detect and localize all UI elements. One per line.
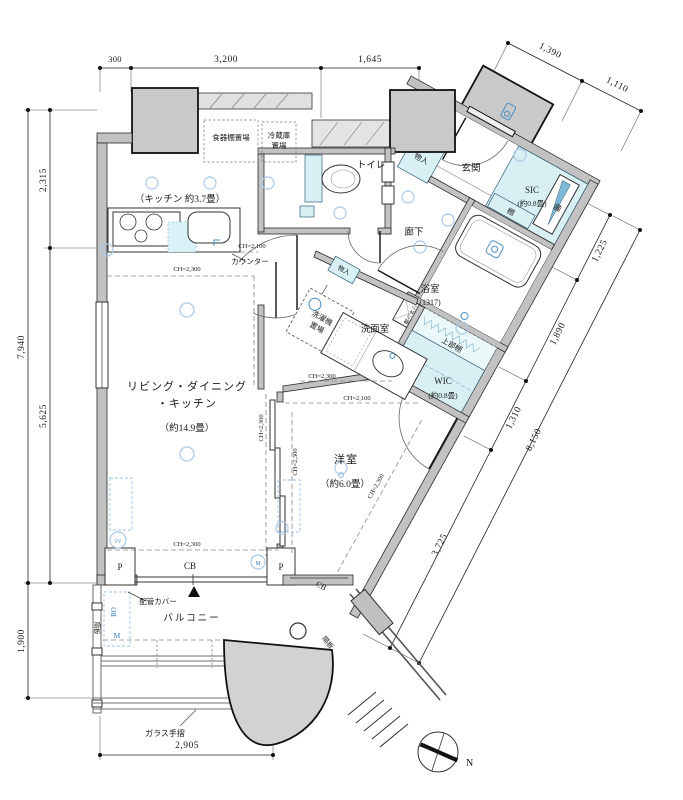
- sic-label: SIC: [525, 185, 539, 195]
- western-room-size: （約6.0畳）: [320, 478, 370, 490]
- balcony-sliding-door: [135, 574, 267, 585]
- p-label-left: P: [117, 562, 122, 572]
- dim-top-1645: 1,645: [358, 55, 382, 65]
- ch2300-western-top: CH=2,300: [308, 373, 335, 380]
- dish-shelf-label: 食器棚置場: [212, 132, 250, 142]
- m-label: M: [114, 631, 121, 640]
- dim-8150: 8,150: [524, 427, 544, 453]
- dim-2315: 2,315: [39, 168, 49, 192]
- ac-unit-ldk: [110, 478, 132, 530]
- fridge-label-1: 冷蔵庫: [268, 130, 291, 140]
- bathroom-label: 浴室: [420, 283, 439, 295]
- curved-structure: [224, 640, 333, 745]
- western-room-label: 洋室: [334, 452, 358, 466]
- glass-rail-label: ガラス手摺: [145, 728, 185, 738]
- ch2300-kitchen: CH=2,300: [173, 266, 200, 273]
- cb-marker: [188, 586, 200, 597]
- pillar-north: [390, 90, 455, 152]
- fridge-label-2: 置場: [272, 140, 287, 150]
- dim-2905: 2,905: [175, 741, 199, 751]
- entrance-label: 玄関: [461, 162, 480, 174]
- dim-1225: 1,225: [590, 238, 610, 264]
- m-outlet-icon: M: [251, 555, 265, 569]
- ldk-label-2: ・キッチン: [157, 397, 217, 410]
- cb-label: CB: [184, 561, 196, 571]
- ch2100-western: CH=2,100: [343, 395, 370, 402]
- ch2300-ldk-south: CH=2,300: [173, 541, 200, 548]
- dim-5625: 5,625: [39, 404, 49, 428]
- partition-label-left: 隔板: [93, 622, 102, 636]
- dim-3725: 3,725: [430, 532, 450, 558]
- dim-1890: 1,890: [548, 321, 568, 347]
- compass-north-label: N: [466, 758, 473, 769]
- bo-label: BO: [110, 607, 118, 617]
- kitchen-label: （キッチン 約3.7畳）: [135, 193, 225, 205]
- toilet-top-hatch: [312, 120, 390, 147]
- dim-1390: 1,390: [537, 41, 563, 61]
- compass: N: [413, 727, 473, 778]
- floorplan-page: 300 3,200 1,645 1,390 1,110 2,315 7,940 …: [0, 0, 683, 800]
- p-label-right: P: [278, 562, 283, 572]
- hallway-label: 廊下: [404, 226, 423, 238]
- dim-1900: 1,900: [17, 629, 27, 653]
- svg-text:M: M: [255, 561, 261, 567]
- toilet-bowl: [322, 165, 360, 193]
- toilet-label: トイレ: [357, 161, 386, 171]
- ldk-label-1: リビング・ダイニング: [127, 379, 247, 393]
- wic-size: (約0.8畳): [428, 390, 458, 400]
- pillar-northwest: [132, 88, 198, 153]
- toilet-room: [300, 155, 394, 263]
- balcony-label: バルコニー: [163, 613, 220, 624]
- pipe-cover-label: 配管カバー: [139, 596, 177, 606]
- ldk-size-label: （約14.9畳）: [160, 422, 215, 434]
- structure-ring: [290, 623, 306, 639]
- ch2100-counter: CH=2,100: [238, 243, 265, 250]
- svg-text:T: T: [105, 249, 109, 255]
- dim-top-300: 300: [108, 54, 122, 64]
- compass-needle: [419, 744, 458, 760]
- balcony: BO M: [92, 585, 446, 747]
- dim-top-3200: 3,200: [214, 55, 238, 65]
- bathroom-size: (1317): [419, 298, 441, 307]
- toilet-tank: [305, 155, 322, 202]
- ceiling-lines: CH=2,300 CH=2,300 CH=2,100 CH=2,300 CH=2…: [107, 243, 420, 556]
- washroom-label: 洗面室: [361, 323, 390, 335]
- partition-label-diag: 隔板: [320, 634, 336, 651]
- wic-label: WIC: [434, 376, 452, 386]
- dim-1110: 1,110: [604, 75, 630, 95]
- ch2300-slider-2: CH=2,300: [292, 448, 299, 475]
- ch2300-slider-1: CH=2,300: [258, 414, 265, 441]
- tv-outlet-icon: TV: [110, 532, 126, 548]
- kitchen-sink: [188, 212, 230, 243]
- sic-size: (約0.8畳): [517, 198, 547, 208]
- floorplan-drawing: 300 3,200 1,645 1,390 1,110 2,315 7,940 …: [0, 0, 683, 800]
- counter-label: カウンター: [231, 257, 269, 266]
- svg-text:TV: TV: [114, 539, 121, 545]
- toilet-paper-holder: [300, 206, 314, 217]
- dim-7940: 7,940: [17, 335, 27, 359]
